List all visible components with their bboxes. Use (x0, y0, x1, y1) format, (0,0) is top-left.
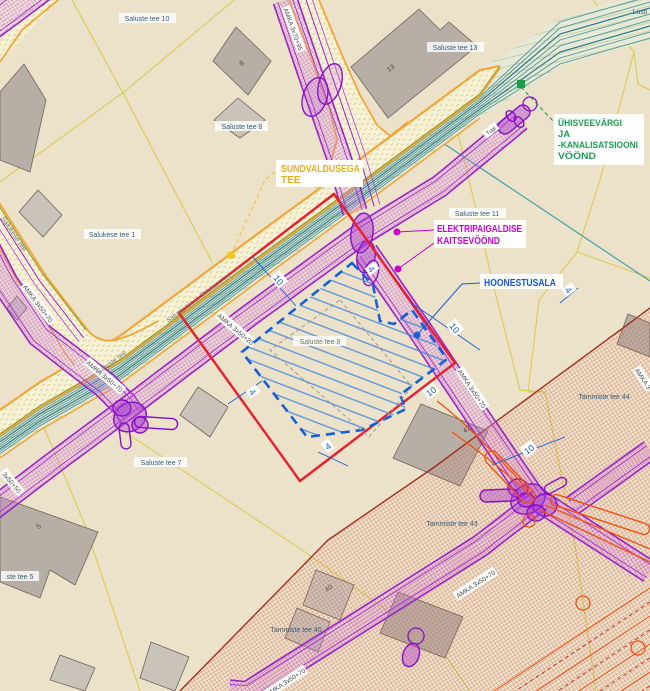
svg-text:Saluste tee 7: Saluste tee 7 (141, 460, 182, 467)
svg-text:HOONESTUSALA: HOONESTUSALA (484, 278, 556, 289)
svg-text:Saluste tee 11: Saluste tee 11 (455, 211, 499, 218)
svg-text:Tammiste tee 44: Tammiste tee 44 (578, 394, 629, 401)
svg-text:Tammiste tee 43: Tammiste tee 43 (426, 521, 477, 528)
svg-text:Saluste tee 13: Saluste tee 13 (433, 45, 478, 52)
svg-text:Saluste tee 9: Saluste tee 9 (300, 339, 341, 346)
svg-text:ste tee 5: ste tee 5 (7, 574, 34, 581)
svg-text:SUNDVALDUSEGA: SUNDVALDUSEGA (281, 164, 360, 175)
svg-text:Saluste tee 8: Saluste tee 8 (222, 124, 263, 131)
svg-text:Salukese tee 1: Salukese tee 1 (89, 232, 135, 239)
svg-text:VÖÖND: VÖÖND (558, 151, 596, 162)
svg-text:ÜHISVEEVÄRGI: ÜHISVEEVÄRGI (558, 118, 622, 129)
svg-text:Saluste tee 10: Saluste tee 10 (125, 16, 170, 23)
svg-text:JA: JA (558, 129, 570, 140)
svg-text:ELEKTRIPAIGALDISE: ELEKTRIPAIGALDISE (437, 224, 522, 235)
svg-text:Tammiste tee 40: Tammiste tee 40 (270, 627, 321, 634)
svg-text:Lusti: Lusti (633, 9, 648, 16)
svg-text:-KANALISATSIOONI: -KANALISATSIOONI (558, 140, 638, 151)
svg-text:KAITSEVÖÖND: KAITSEVÖÖND (437, 234, 500, 247)
svg-text:TEE: TEE (281, 175, 301, 186)
